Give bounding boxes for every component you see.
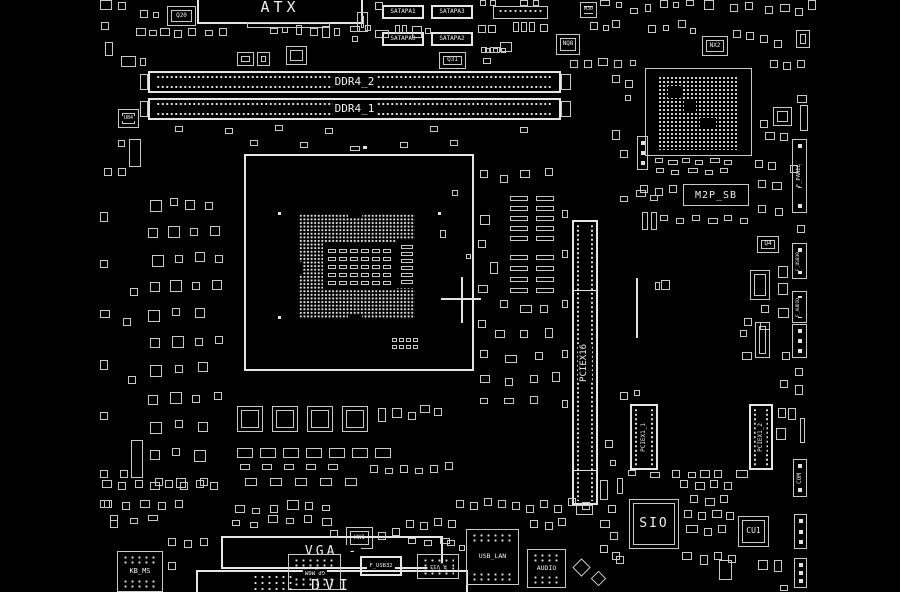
pad [339, 257, 347, 261]
component [378, 408, 386, 422]
component [682, 552, 692, 560]
cpu-socket-notch [348, 210, 362, 218]
component [200, 538, 208, 546]
component [603, 25, 609, 31]
component [175, 500, 183, 508]
pad [536, 216, 554, 221]
component [172, 308, 180, 316]
component [140, 500, 150, 508]
pad [536, 196, 554, 201]
pcie-x16-slot-key-notch [574, 290, 596, 291]
trace-line [461, 277, 463, 323]
header-pin [799, 530, 803, 534]
component [554, 505, 562, 513]
component [375, 30, 389, 38]
component [478, 240, 486, 248]
component [184, 540, 192, 548]
component [205, 202, 213, 210]
f-panel-header-pin [798, 204, 802, 208]
component [100, 212, 108, 222]
component [778, 283, 788, 295]
component [148, 228, 158, 238]
pad [510, 216, 528, 221]
sata-connector-satapa1 [382, 5, 424, 19]
component [260, 448, 276, 458]
component [490, 262, 498, 274]
chip-cu1-body [742, 520, 765, 543]
component [778, 408, 786, 418]
component [110, 520, 118, 528]
component [733, 30, 741, 38]
component [590, 22, 598, 30]
component [513, 22, 519, 32]
component [130, 288, 138, 296]
trace-line [636, 278, 638, 338]
component [150, 482, 160, 490]
component [247, 22, 330, 28]
component [800, 105, 808, 131]
pad [372, 273, 380, 277]
pad [328, 281, 336, 285]
component-inner [276, 410, 294, 428]
component [198, 362, 208, 372]
component [304, 515, 312, 523]
component [724, 215, 732, 221]
component [168, 538, 176, 546]
component [430, 126, 438, 132]
component [625, 80, 633, 88]
component [690, 28, 696, 34]
component [795, 8, 803, 16]
com-header-pin [798, 476, 802, 480]
header-pin [798, 339, 802, 343]
component [746, 32, 754, 40]
component [740, 218, 748, 224]
component [705, 498, 715, 506]
component [724, 482, 732, 490]
pad [361, 281, 369, 285]
component [768, 162, 776, 170]
component [742, 352, 752, 360]
pad [401, 266, 413, 270]
component [420, 405, 430, 413]
component [719, 560, 732, 580]
component [530, 396, 538, 404]
component [708, 218, 718, 224]
component [392, 408, 402, 418]
f-panel-header-pin [798, 164, 802, 168]
component [165, 480, 173, 488]
component [480, 375, 490, 383]
chipset-bga-void [684, 100, 696, 112]
component [140, 58, 146, 66]
component [660, 0, 668, 8]
component [610, 460, 616, 466]
chip-nq8-body [560, 38, 576, 51]
component [175, 420, 183, 428]
chip-nx2-body [706, 40, 724, 52]
component-chip [257, 52, 270, 66]
gp-m6m-header-pins-top [293, 558, 336, 567]
component [612, 130, 620, 140]
component [480, 350, 488, 358]
cpu-socket-fiducial [278, 316, 281, 319]
chip-q31 [439, 52, 466, 69]
component [110, 515, 118, 521]
component [552, 372, 560, 382]
component [758, 205, 766, 213]
sata-connector-satapa3 [431, 5, 473, 19]
component [698, 512, 706, 520]
component [328, 464, 338, 470]
component [776, 428, 786, 440]
component [740, 330, 747, 337]
component [765, 132, 775, 140]
pad [383, 249, 391, 253]
component [671, 170, 679, 175]
header-pin [799, 571, 803, 575]
component-chip [357, 12, 368, 32]
component [283, 448, 299, 458]
pad [339, 249, 347, 253]
component [122, 502, 130, 510]
component [620, 392, 628, 400]
component [783, 62, 791, 70]
component [262, 464, 272, 470]
component [795, 385, 803, 395]
f-usb30-header-pin [798, 259, 802, 263]
pcie-x1-slot-2-pin-column [765, 408, 769, 466]
component [501, 48, 506, 53]
component [500, 300, 508, 308]
component [650, 472, 660, 478]
component [790, 165, 798, 173]
pad [339, 281, 347, 285]
component [562, 350, 568, 358]
pad [350, 281, 358, 285]
component [310, 28, 318, 36]
pad [361, 257, 369, 261]
component [408, 412, 416, 420]
header-pin [799, 540, 803, 544]
component [170, 198, 178, 206]
component [668, 160, 678, 165]
pad [536, 236, 554, 241]
component [808, 0, 816, 10]
f-audio-header-pin [798, 314, 802, 318]
component [788, 408, 796, 420]
component [772, 182, 782, 190]
component [150, 365, 162, 377]
component [562, 250, 568, 258]
component [170, 392, 182, 404]
pad [328, 257, 336, 261]
audio-connector-pins-top [532, 553, 561, 562]
component [300, 142, 308, 148]
component-inner [800, 34, 806, 44]
component [168, 562, 176, 570]
component [100, 360, 108, 370]
chip-q20 [167, 6, 196, 26]
component [195, 308, 205, 318]
component [545, 168, 553, 176]
component [215, 336, 223, 344]
component [630, 60, 636, 66]
pad [372, 281, 380, 285]
component [545, 328, 553, 338]
component [400, 142, 408, 148]
pad [361, 273, 369, 277]
pcie-x1-slot-1-pin-column [634, 408, 638, 466]
chip-m30 [580, 2, 597, 18]
chip-sio [629, 499, 679, 549]
pad [510, 288, 528, 293]
diamond-pad [572, 558, 590, 576]
component [704, 528, 712, 536]
component [612, 20, 620, 28]
component [562, 300, 568, 308]
component [210, 226, 220, 236]
component [284, 464, 294, 470]
pad [401, 280, 413, 284]
header-pin [799, 579, 803, 583]
pin-dot-array [498, 9, 543, 13]
f-usb32-header [360, 556, 402, 576]
cpu-socket-fiducial [438, 212, 441, 215]
component [620, 150, 628, 158]
component [661, 280, 670, 290]
component [118, 168, 126, 176]
component [561, 74, 571, 90]
component [235, 505, 245, 513]
kb-ms-connector-pins-bottom [122, 579, 158, 588]
component [562, 210, 568, 218]
component [780, 133, 788, 141]
component [500, 175, 508, 183]
component [194, 450, 206, 462]
component [478, 25, 486, 33]
pad [510, 255, 528, 260]
pad [350, 257, 358, 261]
pad [361, 265, 369, 269]
component [480, 170, 488, 178]
audio-connector-pins-bottom [532, 575, 561, 584]
f-audio-header-pin [798, 296, 802, 300]
component [375, 2, 383, 10]
component [520, 127, 528, 133]
component [660, 215, 668, 221]
component [526, 505, 534, 513]
pad [350, 249, 358, 253]
component [128, 376, 136, 384]
component [175, 255, 183, 263]
component [270, 478, 282, 486]
component [402, 25, 407, 33]
component-inner [261, 56, 266, 62]
component [329, 448, 345, 458]
component [100, 310, 110, 318]
component [710, 158, 720, 163]
pad [372, 257, 380, 261]
pad [536, 226, 554, 231]
component [620, 196, 628, 202]
component [148, 310, 160, 322]
component [484, 498, 492, 506]
pcie-x1-slot-2-pin-column [753, 408, 757, 466]
pad [536, 288, 554, 293]
chip-q4 [757, 236, 779, 253]
diamond-pad [590, 570, 606, 586]
component [540, 24, 548, 32]
component [434, 518, 442, 526]
pad [392, 338, 397, 342]
component [350, 146, 360, 151]
component [724, 160, 732, 165]
component [192, 395, 200, 403]
component-chip [755, 322, 770, 358]
component [692, 215, 700, 221]
component-inner [311, 410, 329, 428]
component [758, 180, 766, 188]
component [480, 215, 490, 225]
component [561, 101, 571, 117]
component [140, 74, 148, 90]
component [287, 500, 299, 510]
component [495, 330, 505, 338]
component [630, 8, 638, 14]
component [172, 448, 180, 456]
sata-connector-satapa2 [431, 32, 473, 46]
com-header-pin [798, 488, 802, 492]
component [129, 139, 141, 167]
component [650, 195, 658, 201]
component [636, 190, 646, 197]
cpu-socket-fiducial [278, 212, 281, 215]
component [406, 520, 414, 528]
component [101, 22, 109, 30]
component [600, 520, 610, 528]
component [424, 540, 432, 546]
component [730, 4, 738, 12]
component [330, 530, 338, 538]
component [770, 60, 778, 68]
pcie-x16-slot-pin-column [576, 224, 580, 501]
component [395, 25, 400, 33]
pin-dot-array [252, 574, 294, 592]
pad [399, 345, 404, 349]
usb-lan-connector-pins-bottom [471, 572, 514, 581]
component-chip [272, 406, 298, 432]
component [710, 480, 718, 488]
component [245, 478, 257, 486]
component [480, 0, 486, 6]
pad [510, 206, 528, 211]
pad [406, 338, 411, 342]
pad [328, 249, 336, 253]
component [485, 48, 490, 53]
pad [383, 281, 391, 285]
component [778, 266, 788, 278]
component [275, 125, 283, 131]
component-inner [241, 410, 259, 428]
component [521, 22, 527, 32]
chip-m30-body [584, 6, 593, 14]
component [669, 185, 677, 193]
pad [401, 245, 413, 249]
component [352, 448, 368, 458]
component [192, 282, 200, 290]
component [152, 255, 164, 267]
component [720, 168, 728, 173]
component-chip [342, 406, 368, 432]
component [250, 522, 258, 528]
component [250, 140, 258, 146]
component [270, 505, 278, 513]
component [672, 470, 680, 478]
component [466, 254, 471, 259]
component [123, 318, 131, 326]
component [558, 518, 566, 526]
component [158, 502, 166, 510]
component [684, 510, 692, 518]
component [673, 2, 679, 8]
component [778, 308, 789, 318]
component [663, 25, 669, 31]
component [800, 418, 805, 443]
component [130, 518, 138, 524]
component [131, 440, 143, 478]
component [456, 500, 464, 508]
component [174, 30, 182, 38]
pad [510, 226, 528, 231]
component [530, 520, 538, 528]
pad [510, 236, 528, 241]
component [529, 22, 535, 32]
component [765, 6, 773, 14]
component [320, 478, 332, 486]
r-v33-header-pins-bottom [422, 566, 454, 575]
component [149, 30, 157, 36]
component [540, 500, 548, 508]
component [656, 168, 664, 173]
component [135, 480, 143, 488]
component [175, 126, 183, 132]
component [232, 520, 240, 526]
component [378, 532, 386, 540]
component [415, 468, 423, 474]
component-chip [796, 30, 810, 48]
component-inner [346, 410, 364, 428]
component [430, 465, 438, 473]
component [470, 502, 478, 510]
header-pin [799, 519, 803, 523]
pad [372, 265, 380, 269]
component [520, 170, 530, 178]
component [306, 448, 322, 458]
component [440, 230, 446, 238]
component [212, 280, 222, 290]
component [682, 158, 690, 163]
atx-power-connector [197, 0, 363, 24]
component [168, 226, 180, 238]
component [600, 0, 610, 6]
component [628, 470, 636, 476]
component [774, 560, 782, 572]
component [700, 555, 708, 565]
component-chip [773, 107, 792, 126]
component [205, 30, 213, 36]
component [712, 510, 722, 518]
